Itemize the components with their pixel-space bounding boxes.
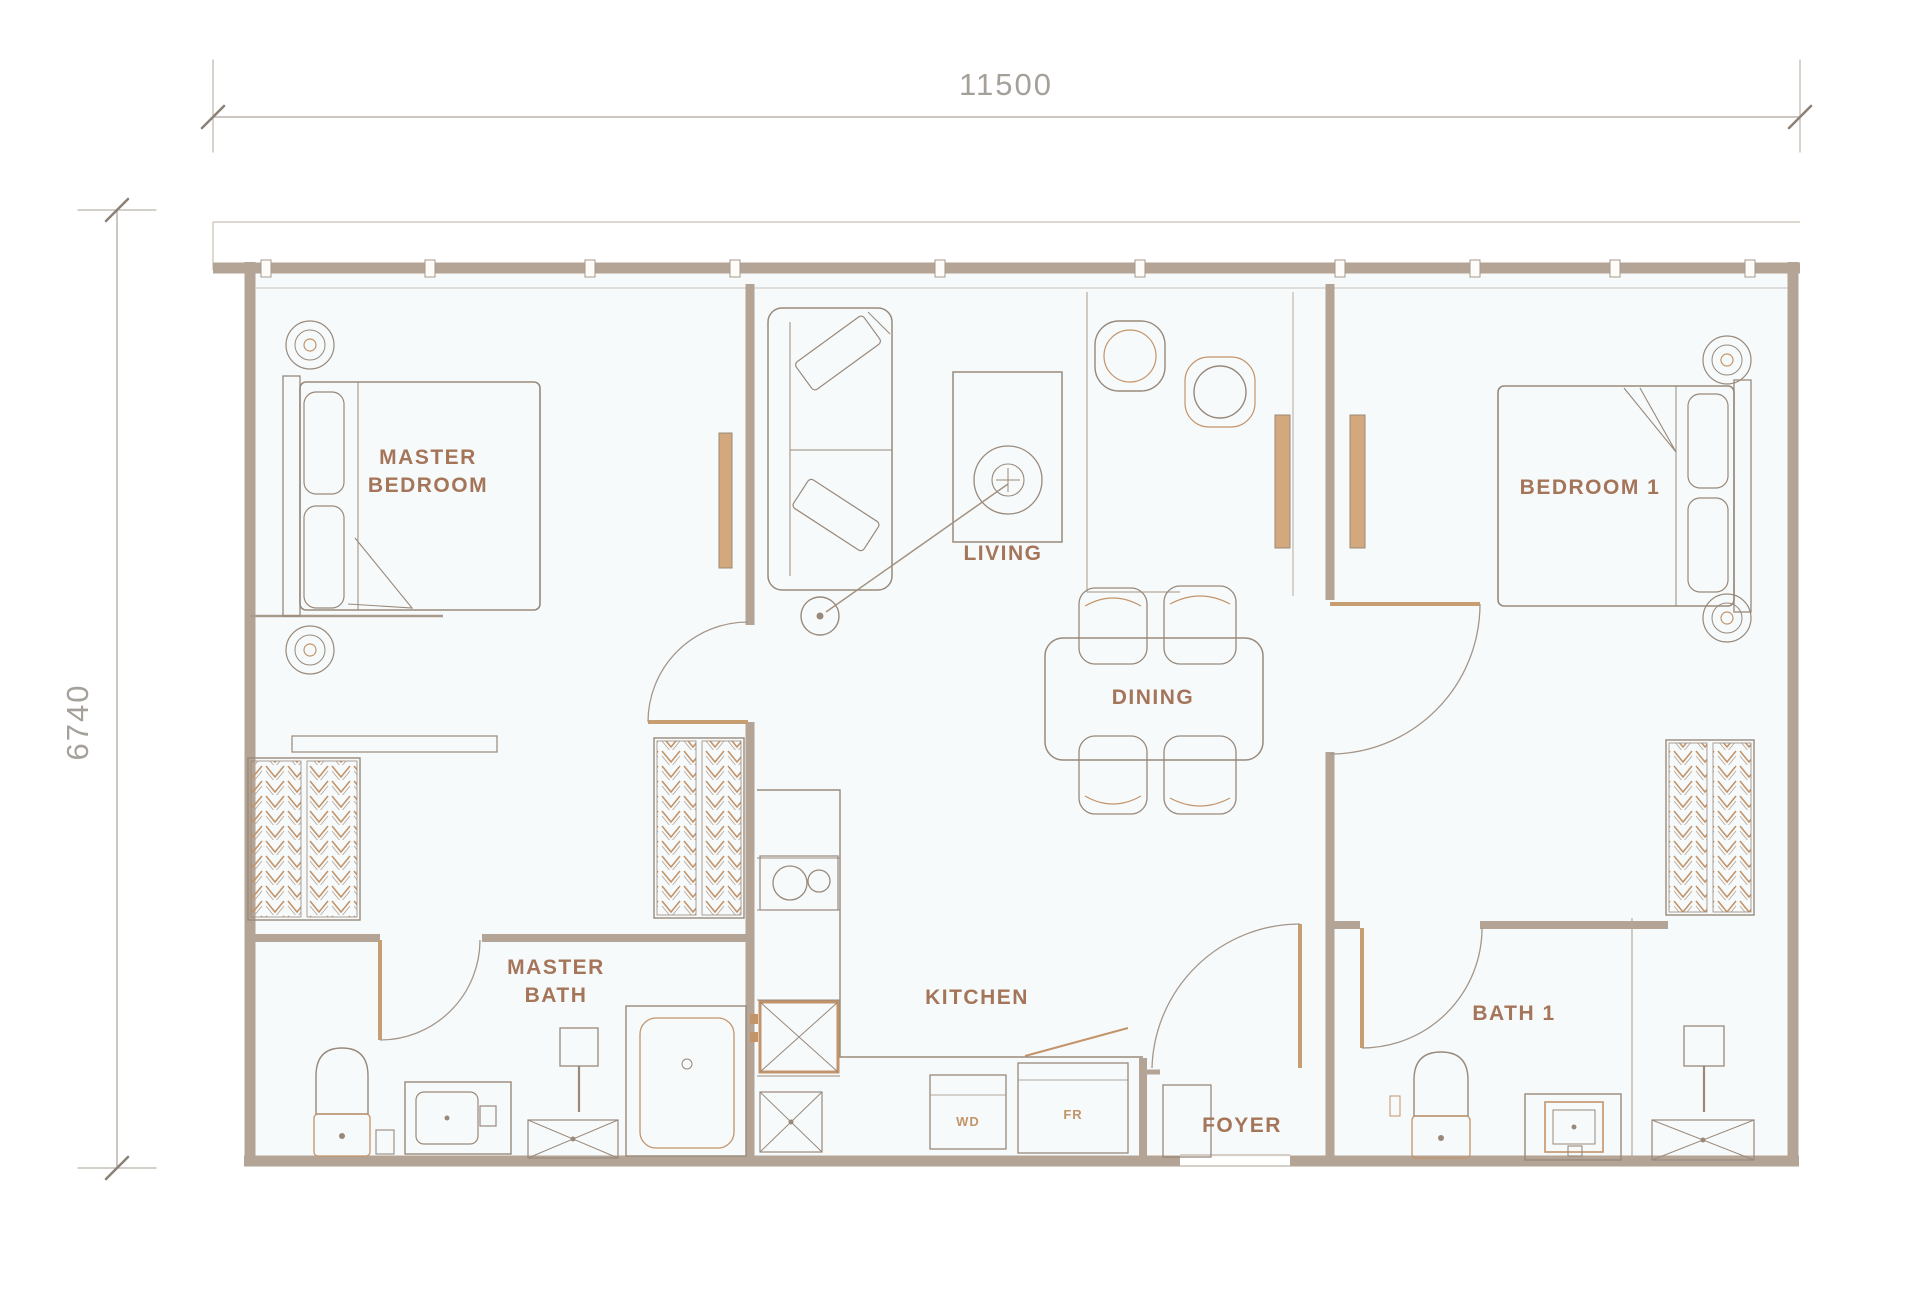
master-bedroom-label-1: MASTER: [379, 446, 477, 469]
living-label: LIVING: [963, 542, 1042, 565]
mullion-tick: [1470, 260, 1480, 277]
washer-dryer-label: WD: [956, 1114, 980, 1129]
bath1-label: BATH 1: [1472, 1002, 1555, 1025]
floor-plan-page: 11500 6740: [0, 0, 1911, 1296]
mullion-tick: [261, 260, 271, 277]
master-bath-label-1: MASTER: [507, 956, 605, 979]
mullion-tick: [1610, 260, 1620, 277]
mullion-tick: [1335, 260, 1345, 277]
dining-label: DINING: [1112, 686, 1195, 709]
mullion-tick: [1135, 260, 1145, 277]
unit-floor: [255, 273, 1790, 1157]
sliding-panel: [719, 433, 732, 568]
bedroom1-label: BEDROOM 1: [1520, 476, 1661, 499]
mullion-tick: [935, 260, 945, 277]
dim-height-label: 6740: [60, 684, 95, 761]
sliding-panel: [1350, 415, 1365, 548]
mullion-tick: [730, 260, 740, 277]
floor-plan-svg: 11500 6740: [0, 0, 1911, 1296]
kitchen-label: KITCHEN: [925, 986, 1029, 1009]
mullion-tick: [1745, 260, 1755, 277]
dim-width-label: 11500: [959, 67, 1053, 102]
mullion-tick: [425, 260, 435, 277]
mullion-tick: [585, 260, 595, 277]
master-bath-label-2: BATH: [525, 984, 588, 1007]
master-bedroom-label-2: BEDROOM: [368, 474, 488, 497]
foyer-label: FOYER: [1202, 1114, 1282, 1137]
sliding-panel: [1275, 415, 1290, 548]
fridge-label: FR: [1063, 1107, 1082, 1122]
